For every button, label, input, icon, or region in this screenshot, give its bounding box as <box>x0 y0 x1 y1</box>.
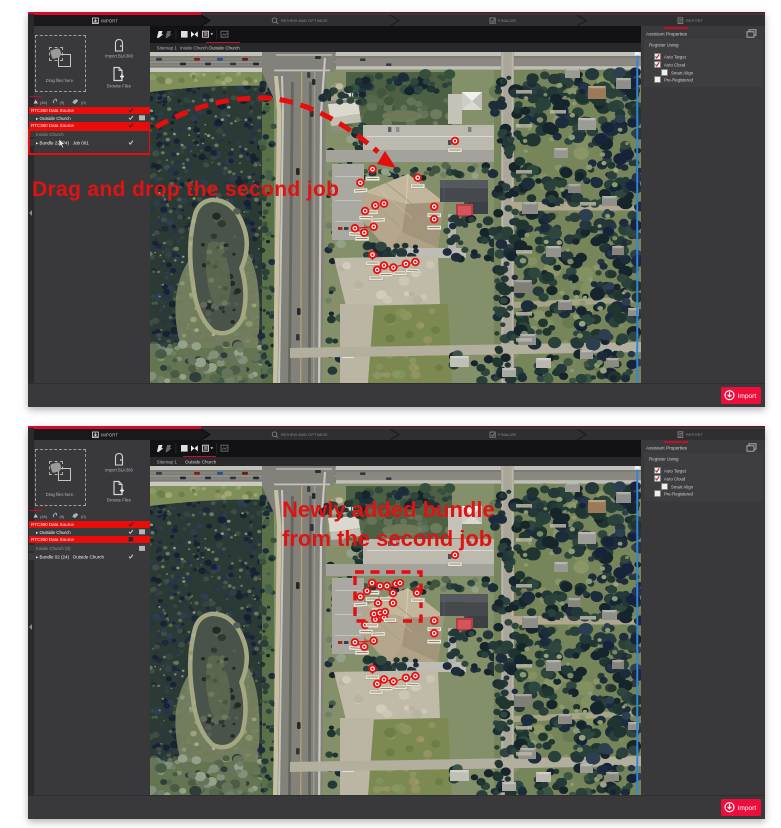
svg-text:Inside Church (0): Inside Church (0) <box>36 546 71 551</box>
svg-text:Import: Import <box>738 393 757 400</box>
svg-text:IMPORT: IMPORT <box>101 432 118 437</box>
svg-text:▸ Outside Church: ▸ Outside Church <box>36 530 71 535</box>
svg-text:FINALIZE: FINALIZE <box>498 18 517 23</box>
svg-text:(0): (0) <box>81 514 87 519</box>
svg-text:Properties: Properties <box>666 446 688 451</box>
svg-text:Browse Files: Browse Files <box>107 84 131 89</box>
svg-text:Outside Church: Outside Church <box>209 46 241 51</box>
svg-text:▸ Outside Church: ▸ Outside Church <box>36 116 71 121</box>
svg-text:RTC360 Data Source: RTC360 Data Source <box>31 123 74 128</box>
svg-text:Drag files here.: Drag files here. <box>46 492 74 497</box>
svg-text:REPORT: REPORT <box>686 18 704 23</box>
svg-text:Outside Church: Outside Church <box>185 460 217 465</box>
svg-text:(45): (45) <box>40 100 48 105</box>
svg-text:▸ Bundle 02 (24) Outside Chu: ▸ Bundle 02 (24) Outside Church <box>36 554 105 559</box>
svg-text:IMPORT: IMPORT <box>101 18 118 23</box>
svg-text:Browse Files: Browse Files <box>107 498 131 503</box>
svg-text:Assistant: Assistant <box>646 32 665 37</box>
svg-text:Import BLK360: Import BLK360 <box>105 54 134 59</box>
svg-text:(9): (9) <box>60 514 66 519</box>
svg-text:Register Using: Register Using <box>649 43 679 48</box>
svg-text:(45): (45) <box>40 514 48 519</box>
svg-text:REPORT: REPORT <box>686 432 704 437</box>
svg-text:RTC360 Data Source: RTC360 Data Source <box>31 537 74 542</box>
svg-text:Properties: Properties <box>666 32 688 37</box>
svg-text:Import: Import <box>738 805 757 812</box>
svg-text:Sitemap 1: Sitemap 1 <box>157 460 178 465</box>
svg-text:FINALIZE: FINALIZE <box>498 432 517 437</box>
svg-text:Smart Align: Smart Align <box>671 484 694 489</box>
svg-text:(9): (9) <box>60 100 66 105</box>
svg-text:Pre-Registered: Pre-Registered <box>664 492 694 497</box>
svg-text:Auto Cloud: Auto Cloud <box>664 476 686 481</box>
svg-text:Import BLK360: Import BLK360 <box>105 468 134 473</box>
svg-text:(0): (0) <box>81 100 87 105</box>
svg-text:Auto Target: Auto Target <box>664 469 687 474</box>
svg-text:Sitemap 1: Sitemap 1 <box>157 46 178 51</box>
svg-text:Auto Cloud: Auto Cloud <box>664 62 686 67</box>
svg-text:Inside Church: Inside Church <box>180 46 208 51</box>
svg-text:REVIEW AND OPTIMIZE: REVIEW AND OPTIMIZE <box>281 18 328 23</box>
svg-text:Drag files here.: Drag files here. <box>46 78 74 83</box>
svg-text:Assistant: Assistant <box>646 446 665 451</box>
svg-text:Auto Target: Auto Target <box>664 55 687 60</box>
svg-text:RTC360 Data Source: RTC360 Data Source <box>31 108 74 113</box>
svg-text:Register Using: Register Using <box>649 457 679 462</box>
svg-text:REVIEW AND OPTIMIZE: REVIEW AND OPTIMIZE <box>281 432 328 437</box>
svg-text:Smart Align: Smart Align <box>671 70 694 75</box>
svg-text:Pre-Registered: Pre-Registered <box>664 78 694 83</box>
svg-text:RTC360 Data Source: RTC360 Data Source <box>31 522 74 527</box>
